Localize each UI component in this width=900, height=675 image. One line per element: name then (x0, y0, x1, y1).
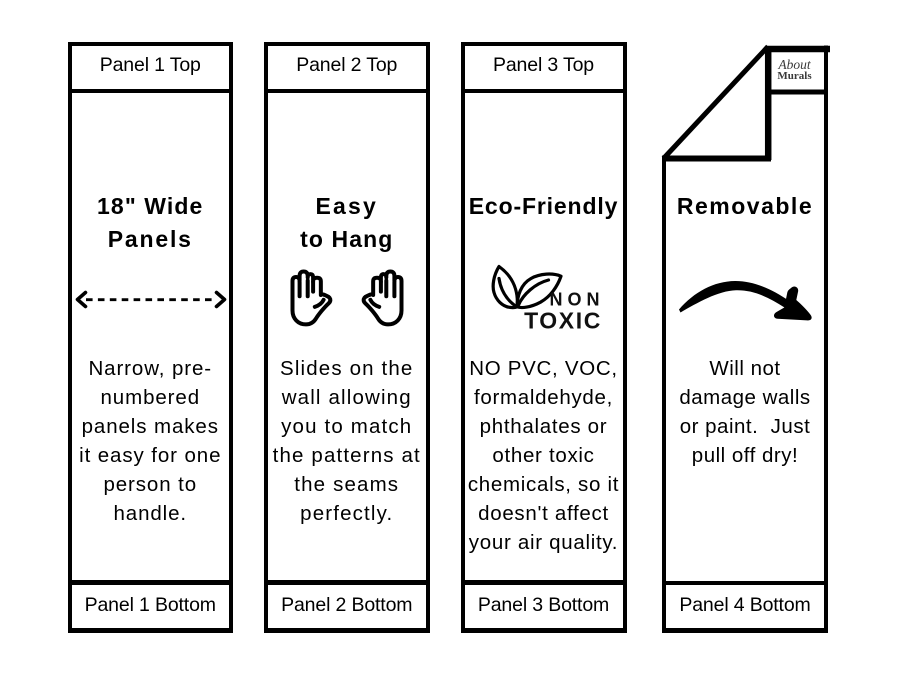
svg-text:TOXIC: TOXIC (524, 307, 602, 333)
